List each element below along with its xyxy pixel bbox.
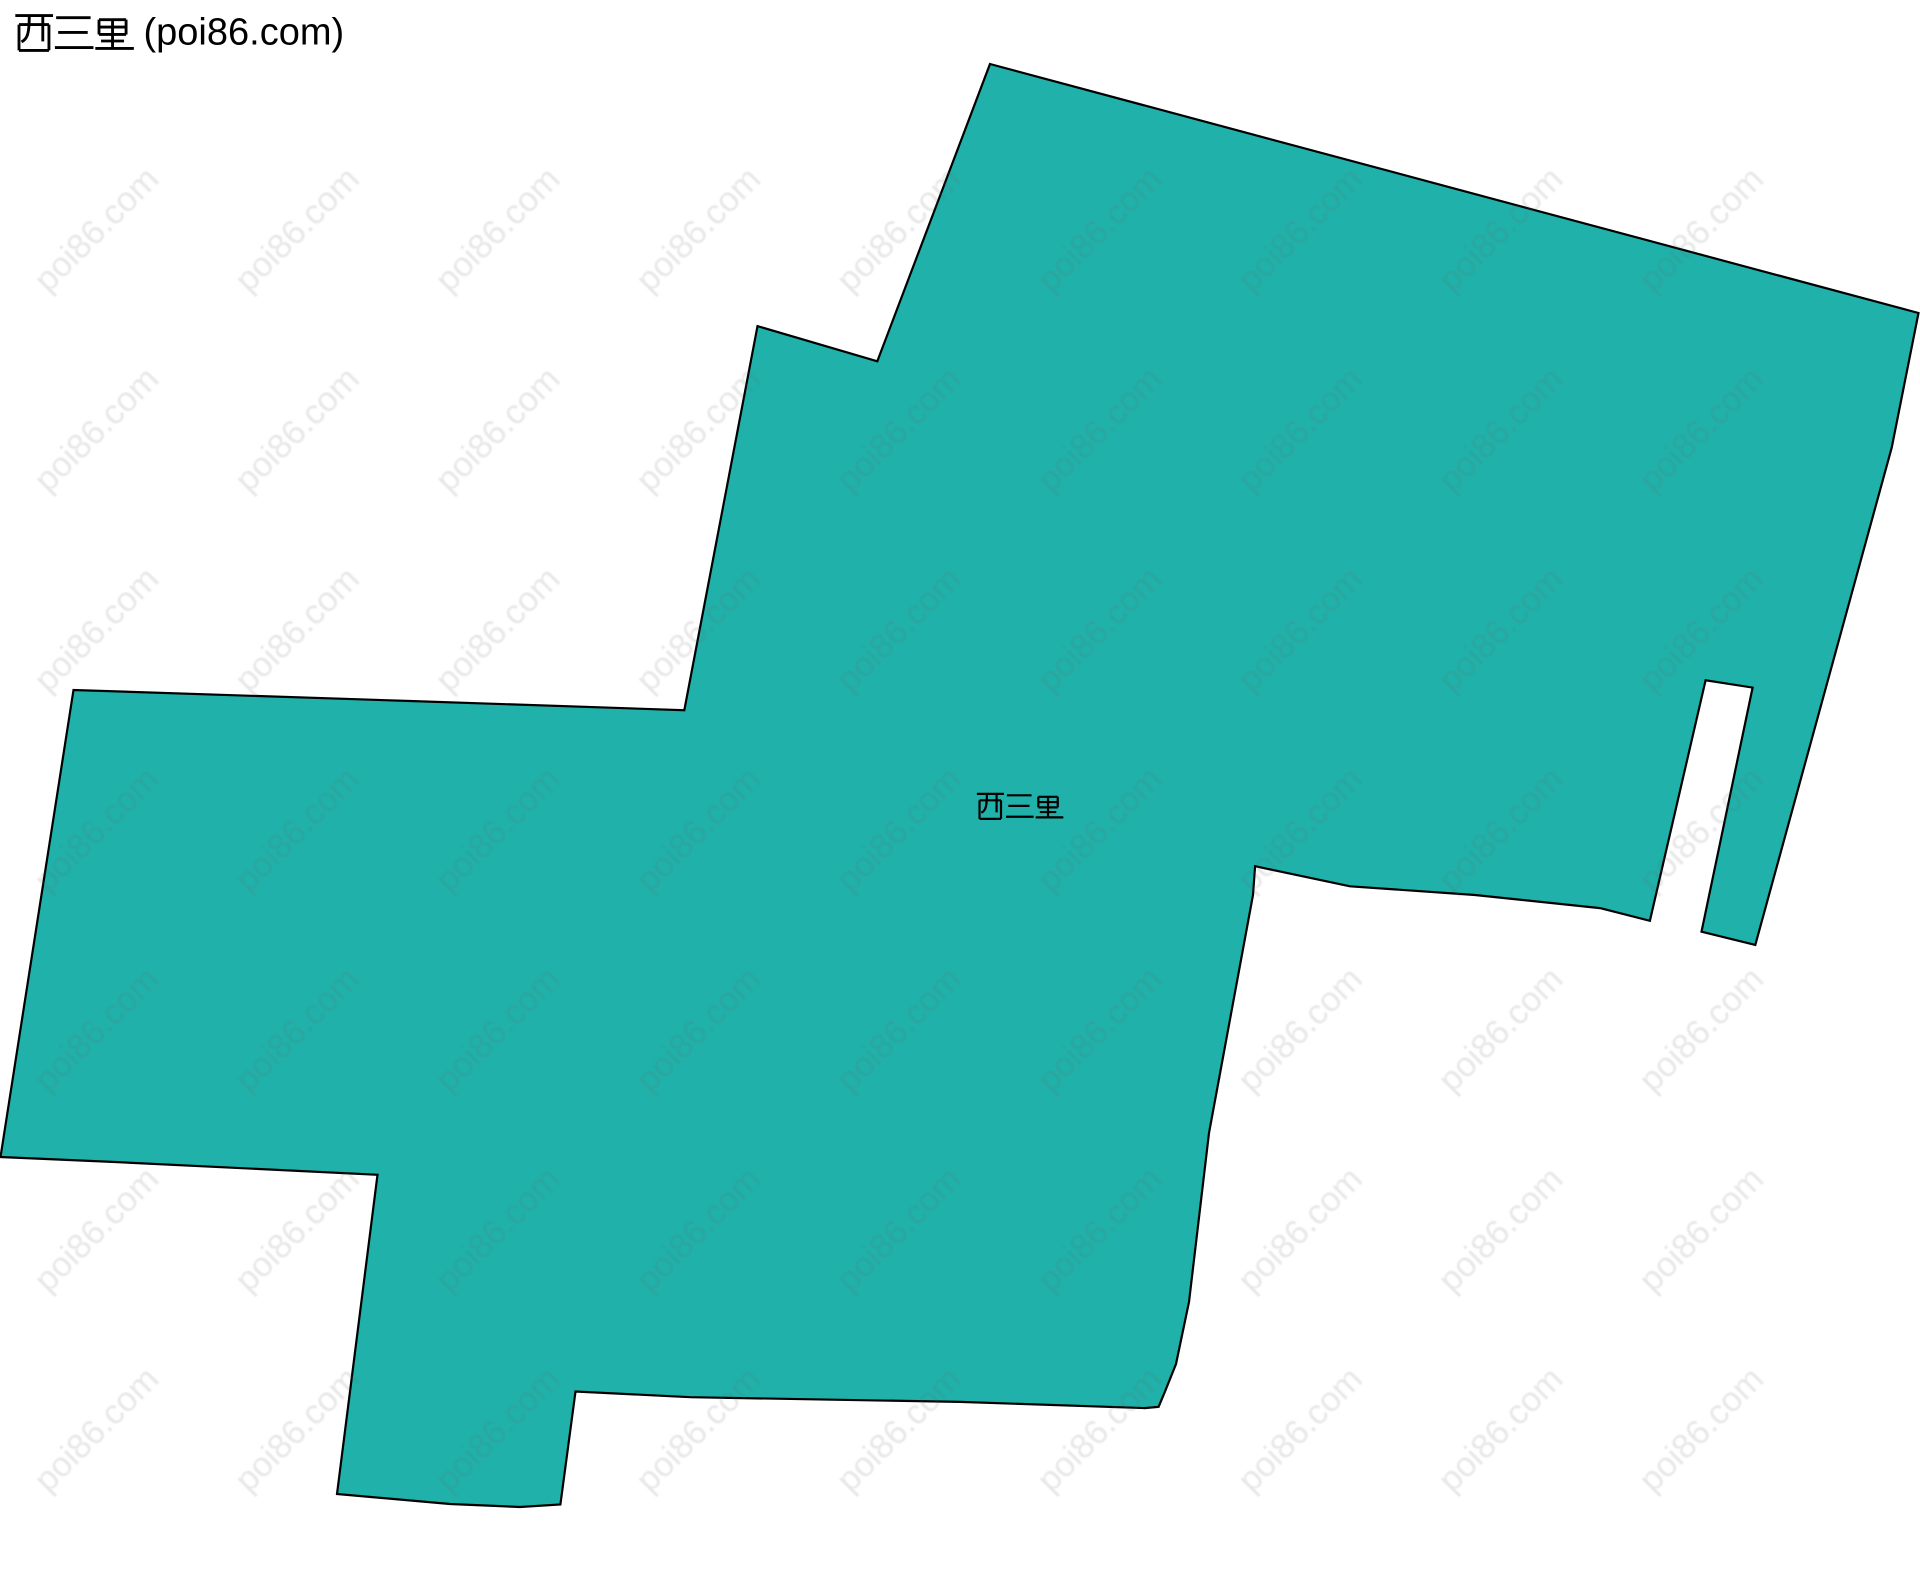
- svg-text:(poi86.com): (poi86.com): [144, 12, 345, 54]
